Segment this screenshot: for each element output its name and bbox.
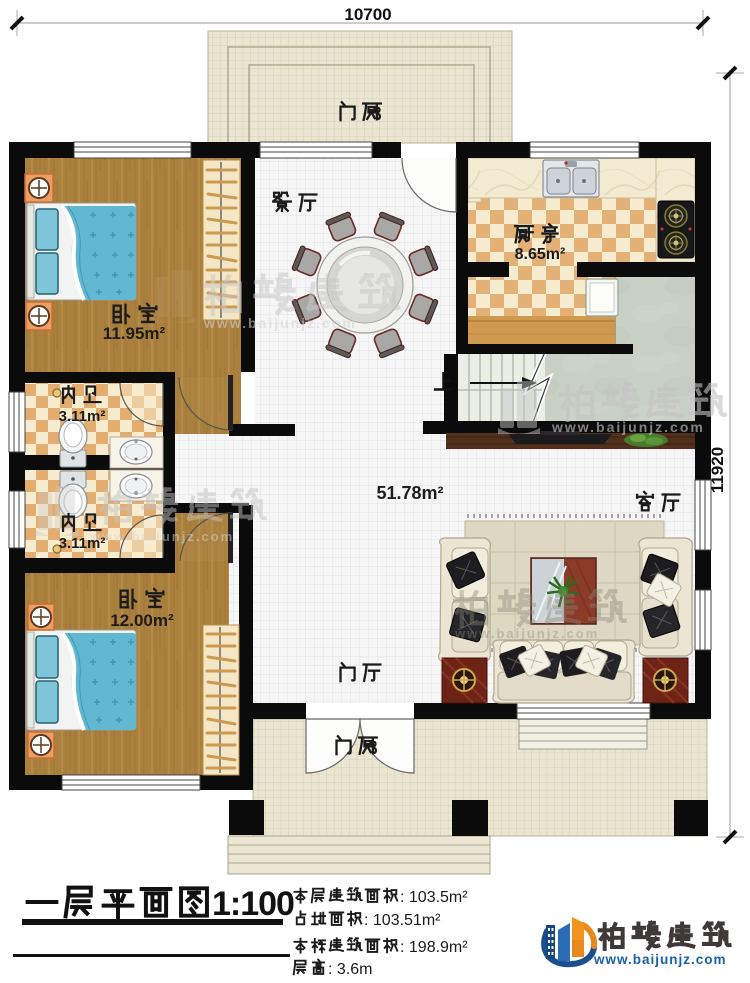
svg-text:www.baijunjz.com: www.baijunjz.com bbox=[454, 626, 599, 641]
svg-text:3.11m²: 3.11m² bbox=[59, 535, 106, 552]
svg-text:8.65m²: 8.65m² bbox=[515, 246, 566, 263]
svg-text:3.11m²: 3.11m² bbox=[59, 408, 106, 425]
svg-text:: 3.6m: : 3.6m bbox=[328, 961, 372, 978]
svg-text:www.baijunjz.com: www.baijunjz.com bbox=[551, 419, 705, 435]
svg-text:: 198.9m²: : 198.9m² bbox=[400, 939, 468, 956]
svg-text:www.baijunjz.com: www.baijunjz.com bbox=[89, 529, 234, 544]
svg-text:11.95m²: 11.95m² bbox=[103, 324, 166, 343]
svg-text:51.78m²: 51.78m² bbox=[376, 483, 443, 503]
svg-text:: 103.5m²: : 103.5m² bbox=[400, 889, 468, 906]
svg-text:www.baijunjz.com: www.baijunjz.com bbox=[203, 315, 357, 331]
svg-text:10700: 10700 bbox=[344, 5, 391, 24]
svg-text:12.00m²: 12.00m² bbox=[110, 611, 174, 630]
svg-text:1:100: 1:100 bbox=[212, 885, 294, 923]
svg-text:11920: 11920 bbox=[708, 447, 727, 493]
svg-text:www.baijunjz.com: www.baijunjz.com bbox=[593, 952, 727, 967]
svg-text:: 103.51m²: : 103.51m² bbox=[364, 912, 441, 929]
